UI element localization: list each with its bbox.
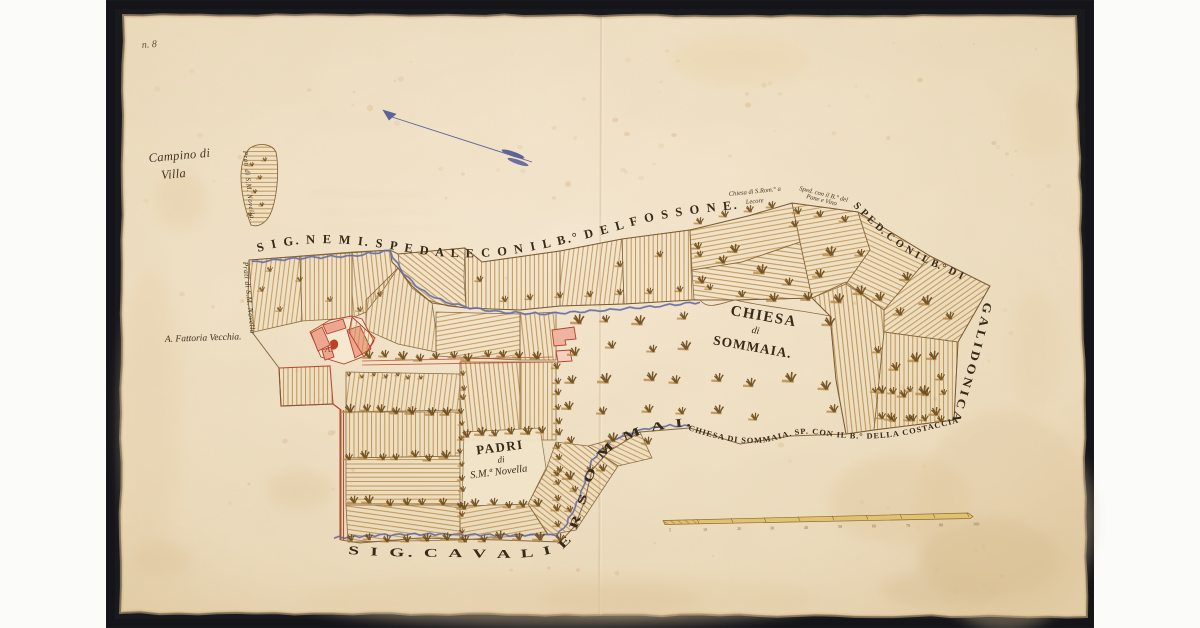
svg-text:10: 10 [703, 527, 707, 532]
svg-text:50: 50 [838, 524, 842, 529]
svg-text:70: 70 [906, 523, 910, 528]
svg-text:20: 20 [737, 526, 741, 531]
svg-text:A.: A. [324, 344, 332, 354]
svg-text:n. 8: n. 8 [141, 39, 157, 51]
svg-text:30: 30 [770, 526, 774, 531]
svg-text:60: 60 [872, 524, 876, 529]
svg-text:40: 40 [804, 525, 808, 530]
svg-text:5: 5 [669, 528, 671, 533]
svg-text:80: 80 [939, 522, 943, 527]
svg-text:Villa: Villa [161, 166, 187, 182]
svg-text:100: 100 [973, 522, 979, 527]
